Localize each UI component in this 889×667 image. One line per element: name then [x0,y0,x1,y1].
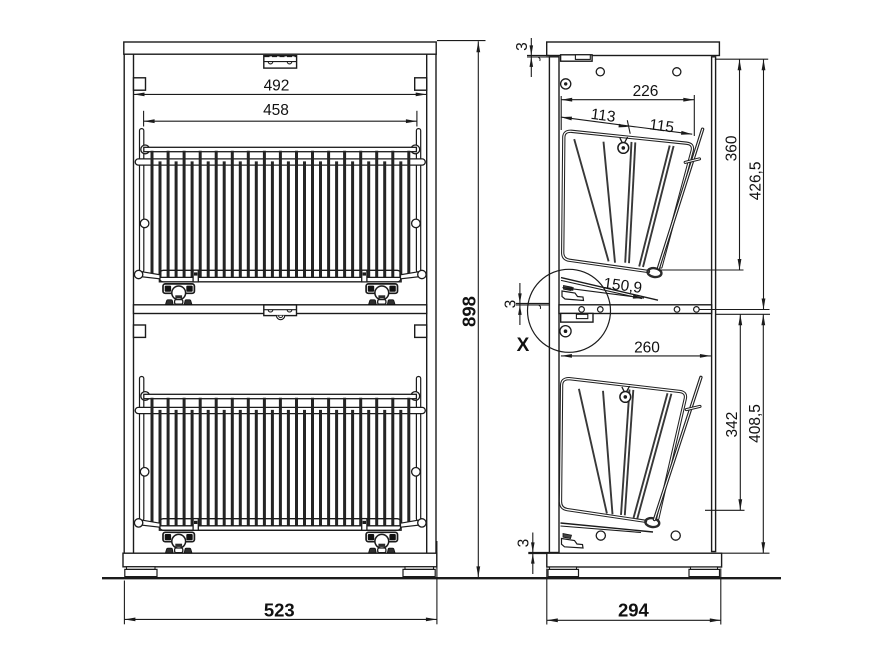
svg-text:492: 492 [264,77,290,94]
svg-text:115: 115 [648,116,675,136]
svg-text:260: 260 [634,340,660,357]
svg-text:523: 523 [264,599,295,620]
svg-text:226: 226 [633,83,659,100]
svg-text:898: 898 [458,296,479,327]
svg-text:X: X [517,335,530,356]
svg-text:426,5: 426,5 [747,162,764,201]
svg-text:3: 3 [514,42,531,51]
svg-text:3: 3 [502,300,519,309]
svg-text:458: 458 [263,102,289,119]
svg-text:342: 342 [724,412,741,438]
svg-text:113: 113 [590,106,617,126]
svg-text:408,5: 408,5 [747,404,764,443]
svg-text:294: 294 [618,599,650,620]
svg-text:360: 360 [723,135,740,161]
svg-text:3: 3 [515,539,532,548]
